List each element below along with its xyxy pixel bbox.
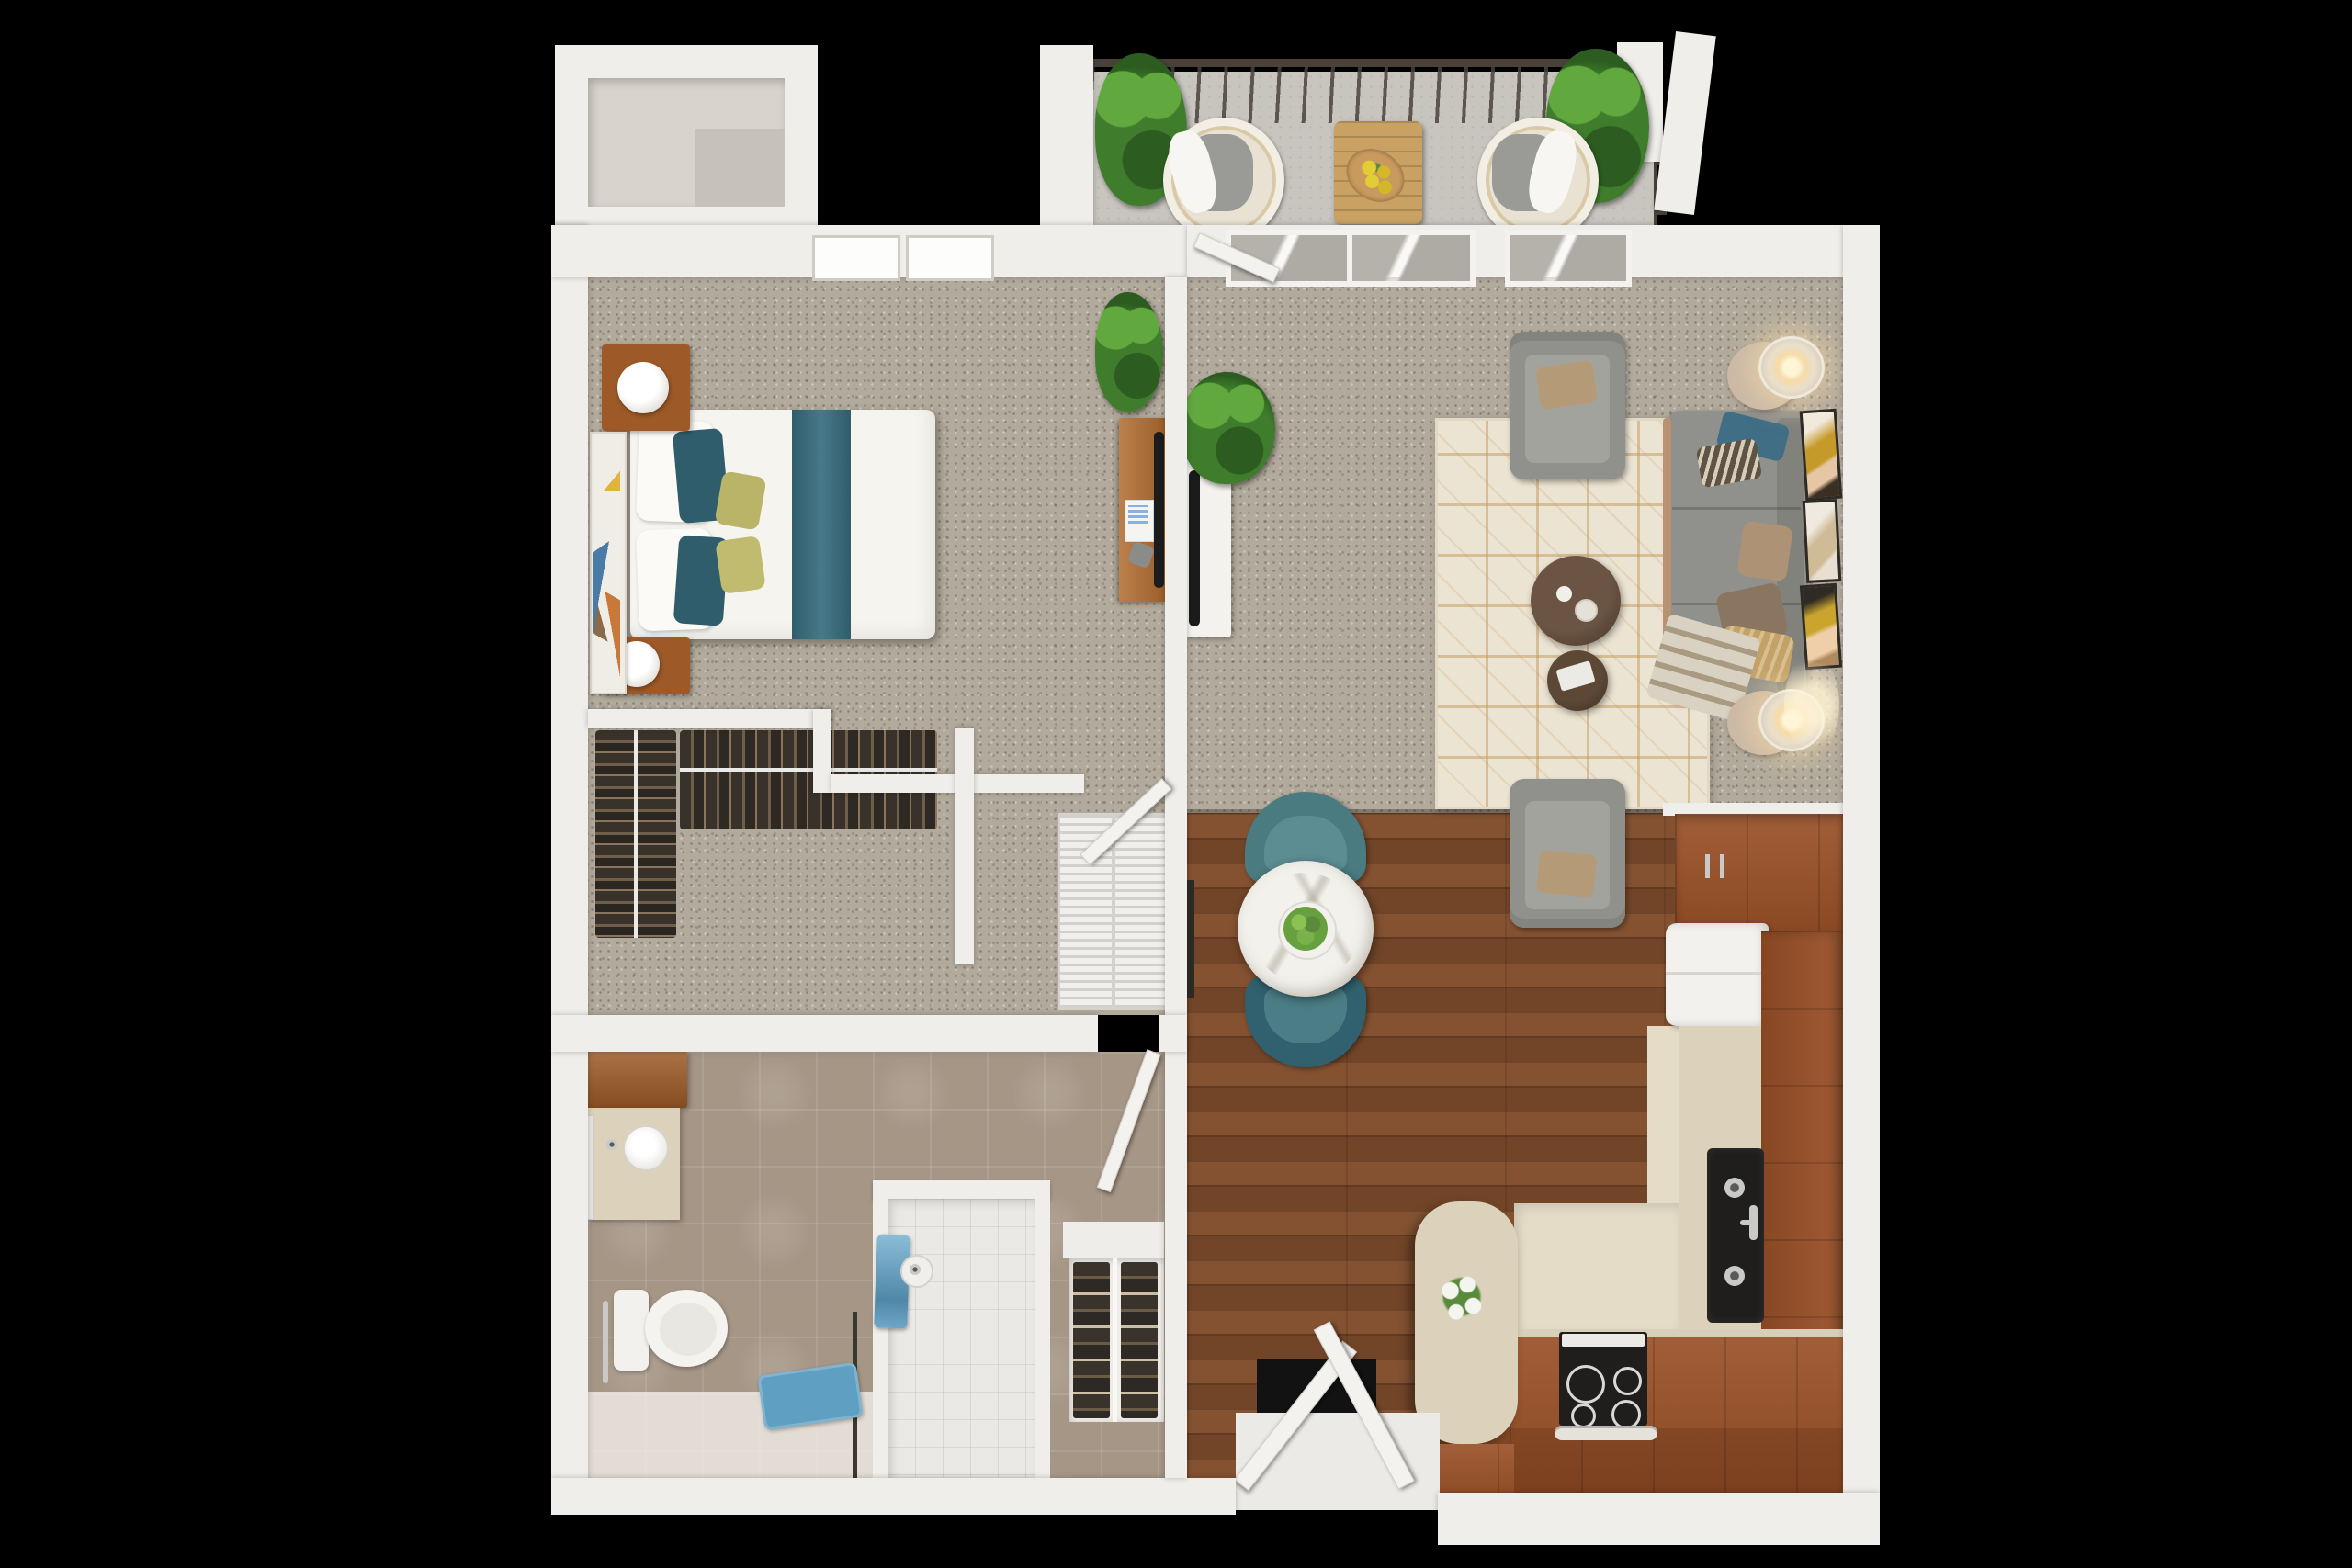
- bed-pillow-green-bottom: [715, 536, 766, 594]
- bed-pillow-green-top: [714, 470, 766, 530]
- bed-teal-runner: [792, 410, 851, 639]
- bedroom-ceiling-light-2: [906, 235, 994, 281]
- stove-burner-2: [1613, 1367, 1642, 1395]
- coffee-table-cup: [1556, 586, 1572, 602]
- toilet-tank: [614, 1290, 649, 1371]
- sliding-glass-panel-2: [1347, 230, 1476, 287]
- cabinet-handle-1: [1705, 854, 1710, 878]
- living-room-plant: [1182, 372, 1275, 484]
- shower-head-center: [910, 1264, 921, 1275]
- shoe-shelf-divider: [1113, 1258, 1117, 1422]
- dryer-louver-unit: [1114, 813, 1169, 1010]
- wall-light-wash: [1784, 654, 1839, 755]
- bedroom-wall-art-abstract: [593, 435, 620, 687]
- refrigerator-seam: [1666, 972, 1761, 975]
- sink-drain-top: [1724, 1178, 1745, 1198]
- coffee-table-large: [1531, 556, 1621, 646]
- closet-rod-left-icon: [634, 730, 638, 938]
- sink-faucet-icon: [606, 1139, 617, 1150]
- island-flowers-icon: [1433, 1269, 1490, 1330]
- closet-step-wall: [813, 709, 831, 793]
- outer-wall-left: [551, 225, 588, 1515]
- bedroom-ceiling-light-1: [812, 235, 900, 281]
- kitchen-faucet-spout: [1740, 1220, 1755, 1225]
- dining-plant-icon: [1283, 907, 1328, 951]
- art-frame-1: [1800, 409, 1843, 502]
- sofa-cushion-seam-1: [1672, 507, 1801, 510]
- sofa-pillow-tan-middle: [1736, 521, 1793, 582]
- bathroom-top-wall-left: [551, 1015, 1098, 1052]
- toilet-seat: [660, 1303, 717, 1356]
- bathroom-sink: [623, 1125, 669, 1171]
- sliding-glass-panel-3: [1505, 230, 1632, 287]
- alcove-step: [695, 129, 785, 207]
- upper-cabinets-right: [1675, 814, 1843, 931]
- balcony-post-left: [1040, 45, 1093, 225]
- shower-curb-top: [873, 1180, 1050, 1199]
- kitchen-aisle-floor-lower: [1514, 1203, 1679, 1332]
- cabinet-handle-2: [1720, 854, 1724, 878]
- armchair-top-pillow: [1535, 360, 1598, 410]
- stove-burner-3: [1571, 1404, 1596, 1428]
- art-frame-2: [1803, 499, 1842, 583]
- stove-burner-1: [1566, 1365, 1605, 1404]
- shoe-column-right: [1121, 1262, 1158, 1418]
- tv-icon: [1189, 470, 1200, 626]
- desk-papers-print: [1128, 505, 1148, 524]
- central-wall: [1165, 277, 1187, 1478]
- kitchen-aisle-floor-upper: [1647, 1026, 1679, 1203]
- coffee-table-bowl: [1575, 599, 1598, 622]
- outer-wall-right: [1843, 225, 1880, 1545]
- closet-rod-top-icon: [680, 768, 937, 772]
- floor-lamp-top: [1758, 336, 1825, 399]
- shoe-column-left: [1073, 1262, 1110, 1418]
- refrigerator: [1666, 923, 1769, 1026]
- vanity-cabinet: [579, 1051, 687, 1108]
- stove-control-strip: [1562, 1334, 1645, 1347]
- shoe-shelf-top: [1063, 1222, 1164, 1258]
- closet-right-wall: [955, 728, 974, 964]
- armchair-bottom-pillow: [1536, 850, 1597, 897]
- table-lamp-top: [617, 362, 669, 413]
- shower-curb-left: [873, 1180, 888, 1478]
- building-stub-right: [1654, 31, 1716, 215]
- bathroom-top-wall-right: [1159, 1015, 1187, 1052]
- desk-monitor-icon: [1154, 432, 1164, 588]
- oven-handle: [1555, 1426, 1657, 1440]
- floor-plan-scene: [0, 0, 2352, 1568]
- closet-top-wall: [588, 709, 831, 728]
- grab-bar-icon: [603, 1301, 608, 1383]
- shower-wall-right: [1035, 1180, 1050, 1478]
- outer-wall-bottom-right: [1438, 1493, 1880, 1545]
- sink-drain-bottom: [1724, 1266, 1745, 1286]
- outer-wall-bottom-left: [551, 1478, 1236, 1515]
- bedroom-plant: [1095, 292, 1163, 412]
